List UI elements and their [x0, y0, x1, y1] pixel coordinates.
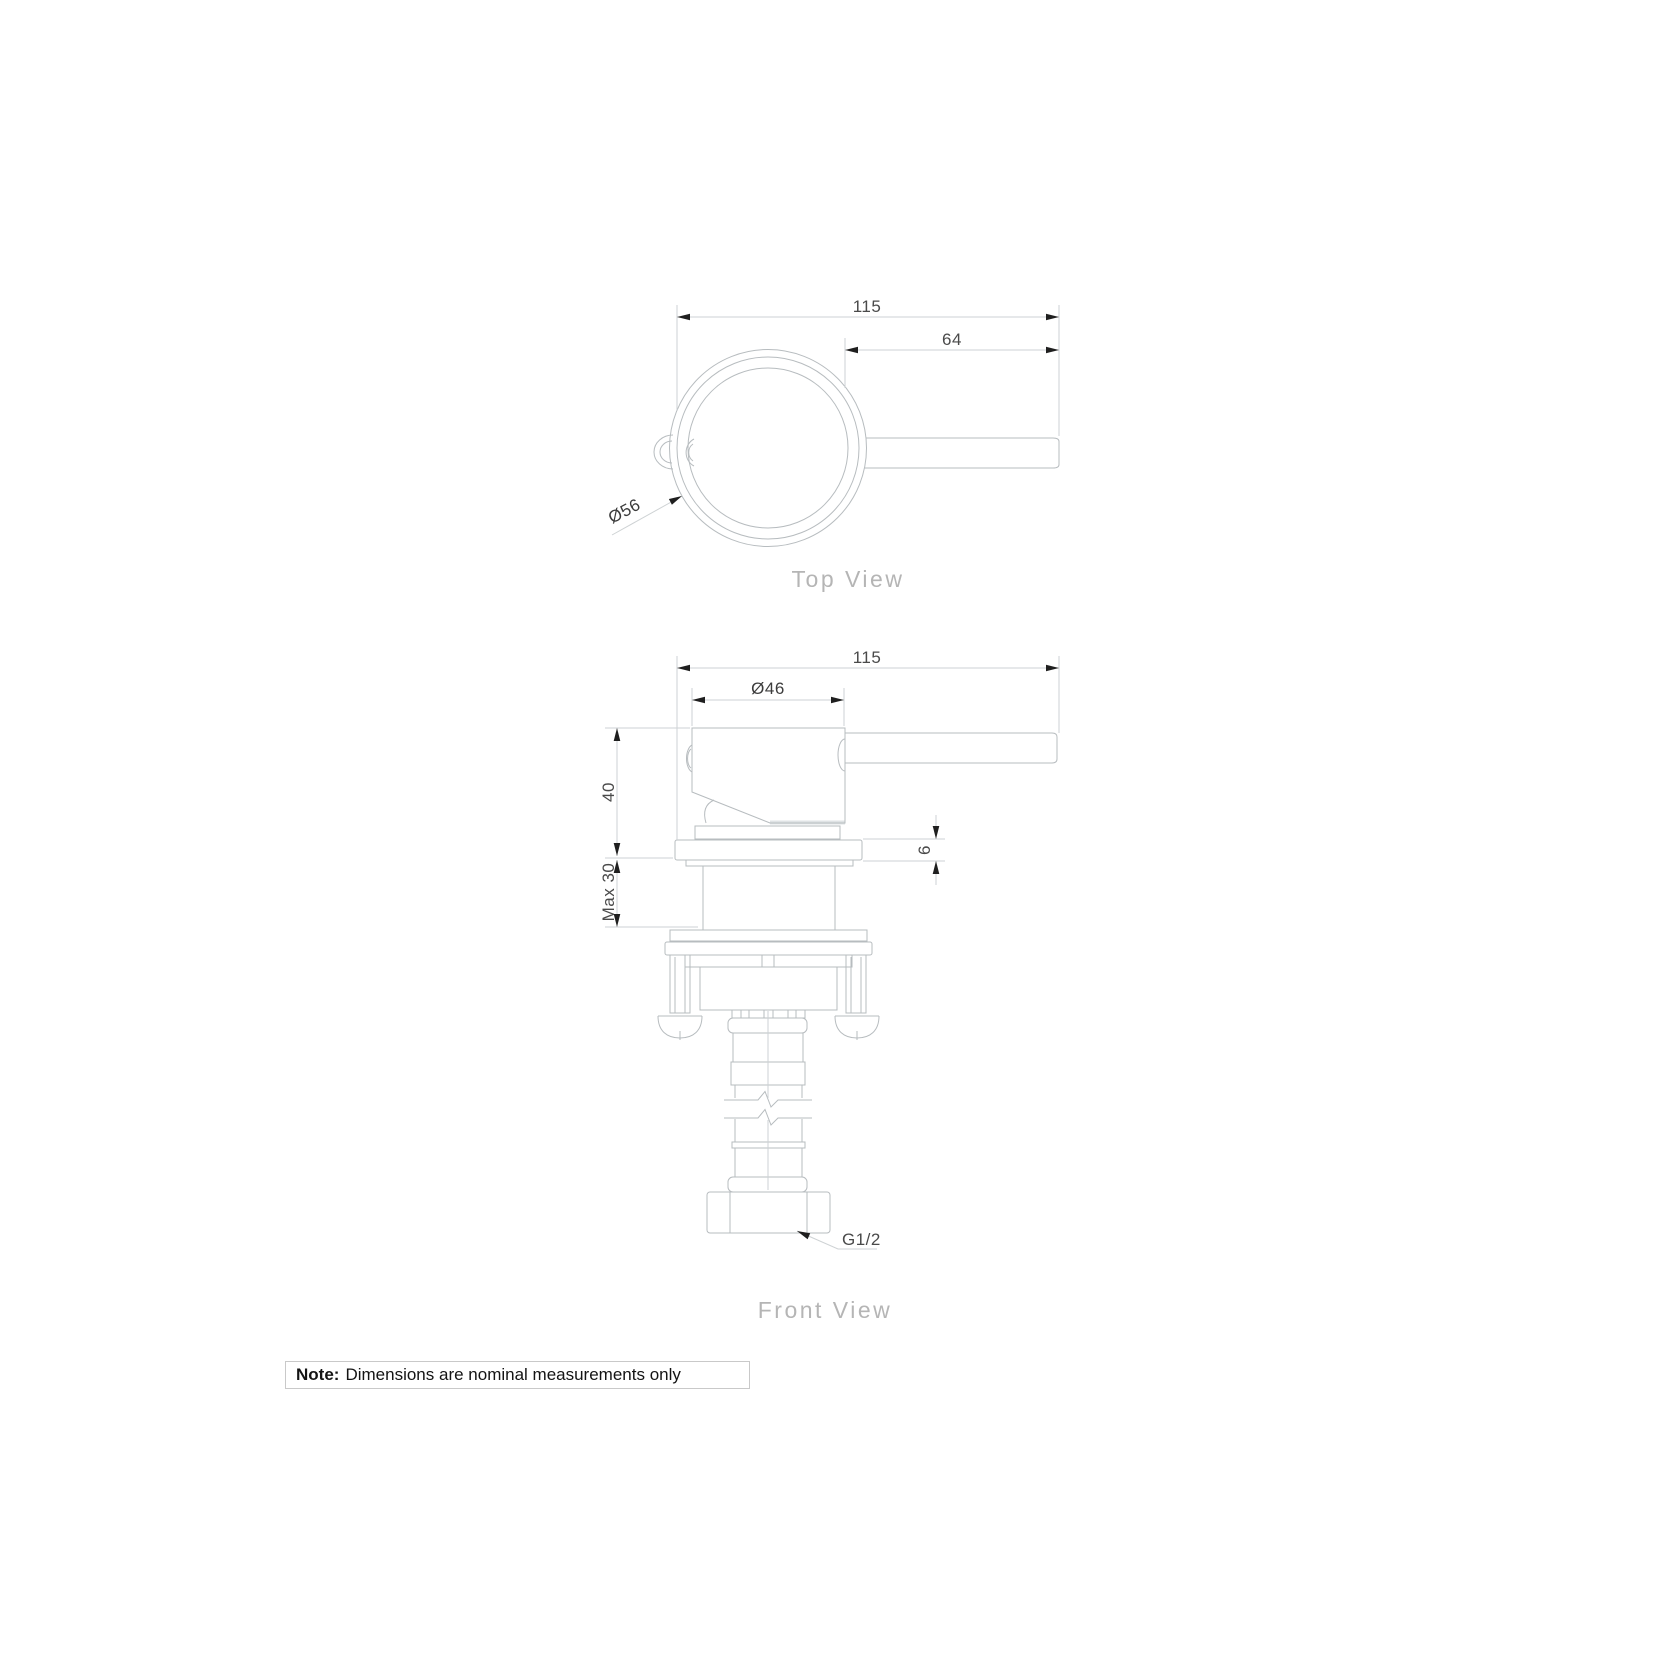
left-mounting-screw	[658, 955, 702, 1040]
arrowhead	[614, 728, 621, 741]
arrowhead	[669, 496, 682, 505]
note-text: Dimensions are nominal measurements only	[345, 1365, 680, 1385]
arrowhead	[1046, 347, 1059, 354]
bracket-notch	[762, 955, 774, 967]
front-view-drawing: 115 Ø46 40 Max 30 6 G1/2 Front View	[599, 648, 1059, 1323]
bracket-mid-block	[685, 955, 852, 967]
arrowhead	[933, 861, 940, 874]
top-view-title: Top View	[792, 566, 905, 592]
connection-nut	[707, 1192, 830, 1233]
left-indicator-arc2	[688, 749, 691, 768]
dim-body-height: 40	[599, 782, 618, 802]
dim-thread-size: G1/2	[842, 1230, 881, 1249]
pedestal	[695, 826, 840, 839]
handle-outline	[850, 438, 1059, 468]
handle-outline-front	[845, 733, 1057, 763]
arrowhead	[845, 347, 858, 354]
arrowhead	[677, 314, 690, 321]
arrowhead	[831, 697, 844, 704]
arrowhead	[692, 697, 705, 704]
bracket-deep-block	[700, 967, 837, 1010]
body-outline	[692, 728, 845, 823]
flange-lip	[686, 860, 853, 866]
handle-joint-arc	[838, 739, 845, 771]
arrowhead	[933, 826, 940, 839]
right-mounting-screw	[835, 955, 879, 1040]
wall-flange	[675, 840, 862, 860]
bracket-plate-lower	[665, 942, 872, 955]
dim-overall-width-front: 115	[853, 648, 882, 667]
top-view-drawing: 115 64 Ø56 Top View	[605, 297, 1059, 592]
dim-max-wall-depth: Max 30	[599, 863, 618, 922]
arrowhead	[1046, 665, 1059, 672]
front-view-dimensions: 115 Ø46 40 Max 30 6 G1/2	[599, 648, 1059, 1249]
note-label: Note:	[296, 1365, 339, 1385]
drawing-sheet: 115 64 Ø56 Top View	[0, 0, 1676, 1676]
dim-body-diameter: Ø46	[751, 679, 785, 698]
arrowhead	[677, 665, 690, 672]
supply-pipe	[724, 1010, 812, 1192]
note-box: Note: Dimensions are nominal measurement…	[285, 1361, 750, 1389]
arrowhead	[1046, 314, 1059, 321]
dim-handle-length: 64	[942, 330, 962, 349]
front-view-title: Front View	[758, 1297, 893, 1323]
bracket-plate-upper	[670, 930, 867, 941]
dim-plate-thickness: 6	[915, 845, 934, 855]
pivot-arc	[705, 800, 714, 823]
arrowhead	[797, 1231, 810, 1239]
dim-overall-width-top: 115	[853, 297, 882, 316]
technical-drawing: 115 64 Ø56 Top View	[0, 0, 1676, 1676]
dim-trim-diameter: Ø56	[605, 495, 644, 528]
arrowhead	[614, 843, 621, 856]
trim-outer-circle	[670, 350, 867, 547]
valve-column	[703, 866, 835, 930]
